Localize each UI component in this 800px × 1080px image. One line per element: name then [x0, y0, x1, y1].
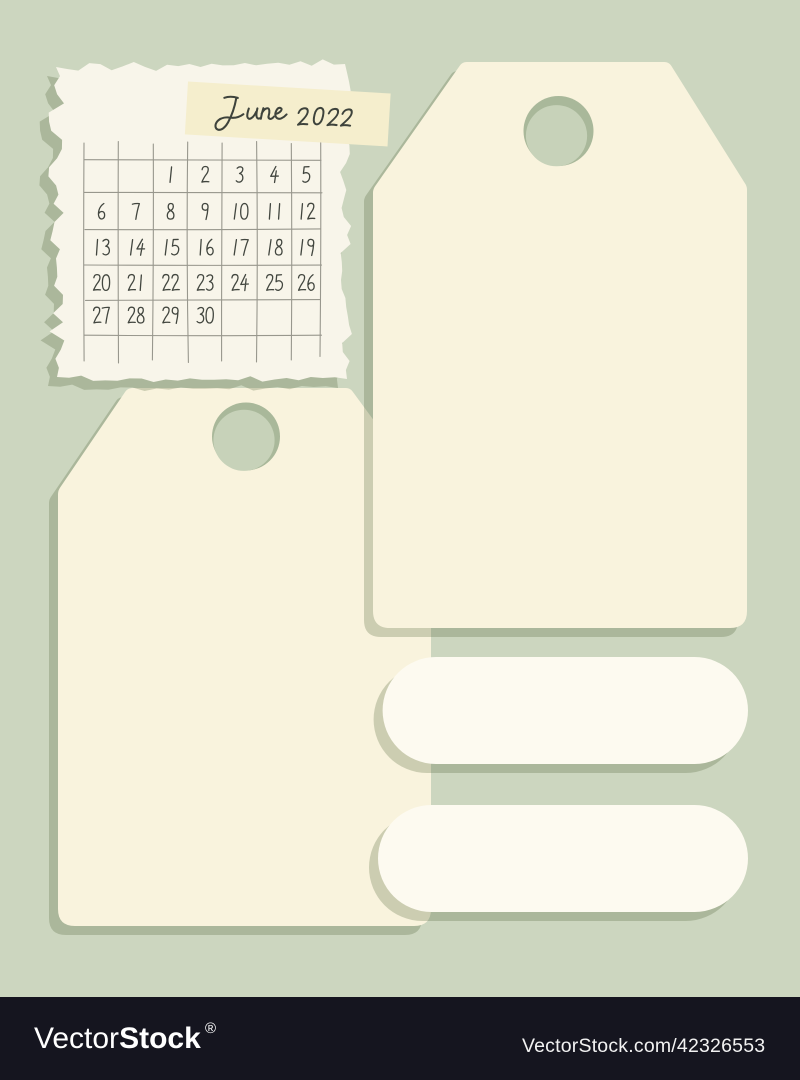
svg-text:®: ®	[205, 1020, 216, 1037]
svg-text:VectorStock.com/42326553: VectorStock.com/42326553	[522, 1035, 765, 1057]
svg-text:VectorStock: VectorStock	[34, 1022, 201, 1055]
